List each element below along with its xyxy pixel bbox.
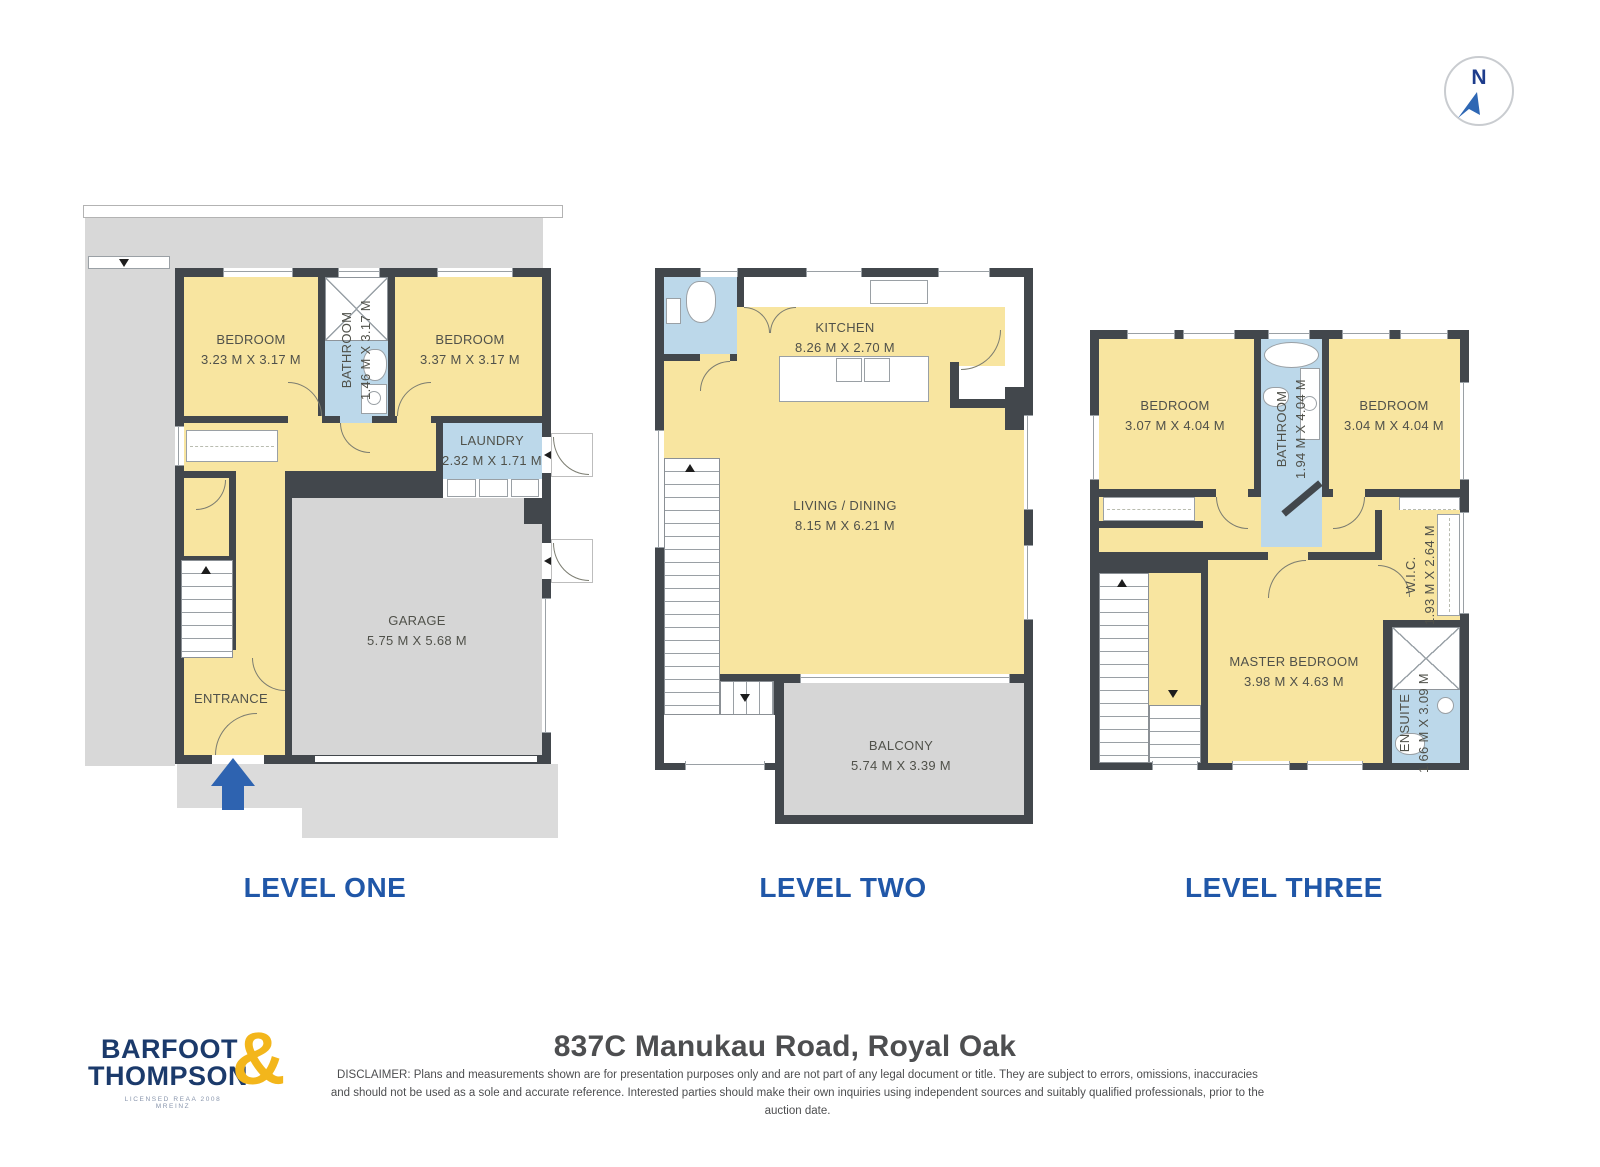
room-label-bedroom3: BEDROOM3.07 M X 4.04 M <box>1105 396 1245 435</box>
window <box>338 268 380 277</box>
window <box>542 598 551 733</box>
room-label-laundry: LAUNDRY2.32 M X 1.71 M <box>432 431 552 470</box>
wardrobe-wall <box>1099 521 1203 528</box>
stairs-down-arrow-icon <box>1168 690 1178 698</box>
window <box>1268 330 1310 339</box>
stairs-landing <box>1149 573 1201 705</box>
window <box>655 430 664 548</box>
deck-gate-arrow-icon <box>119 259 129 267</box>
window <box>1460 512 1469 614</box>
logo-line1: BARFOOT <box>88 1036 238 1063</box>
window <box>1024 545 1033 620</box>
wardrobe <box>1103 497 1195 521</box>
window <box>1400 330 1448 339</box>
basin-ensuite <box>1437 697 1454 714</box>
understairs <box>664 715 775 763</box>
window <box>437 268 513 277</box>
sliding-door <box>800 674 1010 683</box>
window <box>223 268 293 277</box>
window <box>1127 330 1175 339</box>
disclaimer-text: DISCLAIMER: Plans and measurements shown… <box>330 1067 1265 1120</box>
door-gap <box>1333 489 1365 497</box>
island-sink <box>836 358 862 382</box>
room-label-bathroom1: BATHROOM1.46 M X 3.17 M <box>335 290 377 410</box>
window <box>806 268 862 277</box>
door-gap <box>1216 489 1248 497</box>
room-label-balcony: BALCONY5.74 M X 3.39 M <box>831 736 971 775</box>
door-gap <box>1268 552 1308 560</box>
stairs-up-arrow-icon <box>685 464 695 472</box>
window <box>1342 330 1390 339</box>
level-one-title: LEVEL ONE <box>200 872 450 904</box>
stairs-l1 <box>181 560 233 658</box>
counter-return <box>1005 277 1024 387</box>
window <box>1024 415 1033 510</box>
door-gap <box>288 416 322 423</box>
balcony-wall-right <box>1024 683 1033 824</box>
room-label-garage: GARAGE5.75 M X 5.68 M <box>347 611 487 650</box>
room-label-bathroom3: BATHROOM1.94 M X 4.04 M <box>1270 369 1312 489</box>
garage-door <box>315 756 537 762</box>
room-label-kitchen: KITCHEN8.26 M X 2.70 M <box>775 318 915 357</box>
stairs-down-arrow-icon <box>740 694 750 702</box>
window <box>700 268 738 277</box>
room-label-ensuite: ENSUITE1.66 M X 3.09 M <box>1393 663 1435 783</box>
stairs-l2 <box>664 458 720 715</box>
entrance-arrow-shaft <box>222 784 244 810</box>
balcony-wall-left <box>775 683 784 824</box>
washer <box>447 479 476 497</box>
logo-line2: THOMPSON <box>88 1063 238 1090</box>
tub-laundry <box>511 479 539 497</box>
stairs-l3-lower <box>1149 705 1201 763</box>
window <box>1307 761 1363 770</box>
bathtub <box>1264 342 1319 368</box>
door-gap <box>700 354 730 361</box>
compass: N <box>1444 56 1514 126</box>
roof-outline <box>83 205 563 218</box>
window <box>1232 761 1290 770</box>
room-label-master: MASTER BEDROOM3.98 M X 4.63 M <box>1214 652 1374 691</box>
closet-wall <box>950 399 1024 408</box>
window <box>1152 761 1198 770</box>
room-label-bedroom1: BEDROOM3.23 M X 3.17 M <box>181 330 321 369</box>
threshold-arrow-icon <box>544 557 551 565</box>
deck-gate <box>88 256 170 269</box>
dryer <box>479 479 508 497</box>
garage-notch-wall <box>524 498 551 524</box>
level-three-title: LEVEL THREE <box>1154 872 1414 904</box>
basin-l2 <box>666 298 681 324</box>
logo-tagline: LICENSED REAA 2008 MREINZ <box>108 1096 238 1110</box>
brand-logo: BARFOOT THOMPSON & LICENSED REAA 2008 MR… <box>88 1036 238 1106</box>
compass-n-label: N <box>1446 66 1512 90</box>
balcony-wall-bottom <box>775 815 1033 824</box>
entrance-arrow-icon <box>211 758 255 786</box>
room-label-living: LIVING / DINING8.15 M X 6.21 M <box>765 496 925 535</box>
island-sink2 <box>864 358 890 382</box>
address-title: 837C Manukau Road, Royal Oak <box>450 1030 1120 1064</box>
room-label-entrance: ENTRANCE <box>181 689 281 709</box>
logo-ampersand: & <box>232 1022 285 1096</box>
room-label-bedroom4: BEDROOM3.04 M X 4.04 M <box>1324 396 1464 435</box>
floor-plan-sheet: BEDROOM3.23 M X 3.17 M BATHROOM1.46 M X … <box>0 0 1600 1167</box>
stairs-up-arrow-icon <box>201 566 211 574</box>
room-label-wic: W.I.C.1.93 M X 2.64 M <box>1399 515 1441 635</box>
window <box>938 268 990 277</box>
apron-driveway <box>302 764 558 838</box>
door-gap <box>340 416 372 423</box>
window <box>1183 330 1235 339</box>
level-two-title: LEVEL TWO <box>718 872 968 904</box>
toilet-l2 <box>686 281 716 323</box>
stairs-up-arrow-icon <box>1117 579 1127 587</box>
stairs-l3 <box>1099 573 1149 763</box>
window <box>175 426 184 466</box>
deck-left <box>85 218 175 766</box>
closet-fill <box>959 366 1005 399</box>
compass-arrow-icon <box>1456 90 1486 120</box>
hall-wardrobe <box>186 430 278 462</box>
cooktop <box>870 280 928 304</box>
room-fill-corridor <box>236 471 285 657</box>
window <box>1090 415 1099 480</box>
room-label-bedroom2: BEDROOM3.37 M X 3.17 M <box>400 330 540 369</box>
door-gap <box>397 416 431 423</box>
window <box>685 761 765 770</box>
